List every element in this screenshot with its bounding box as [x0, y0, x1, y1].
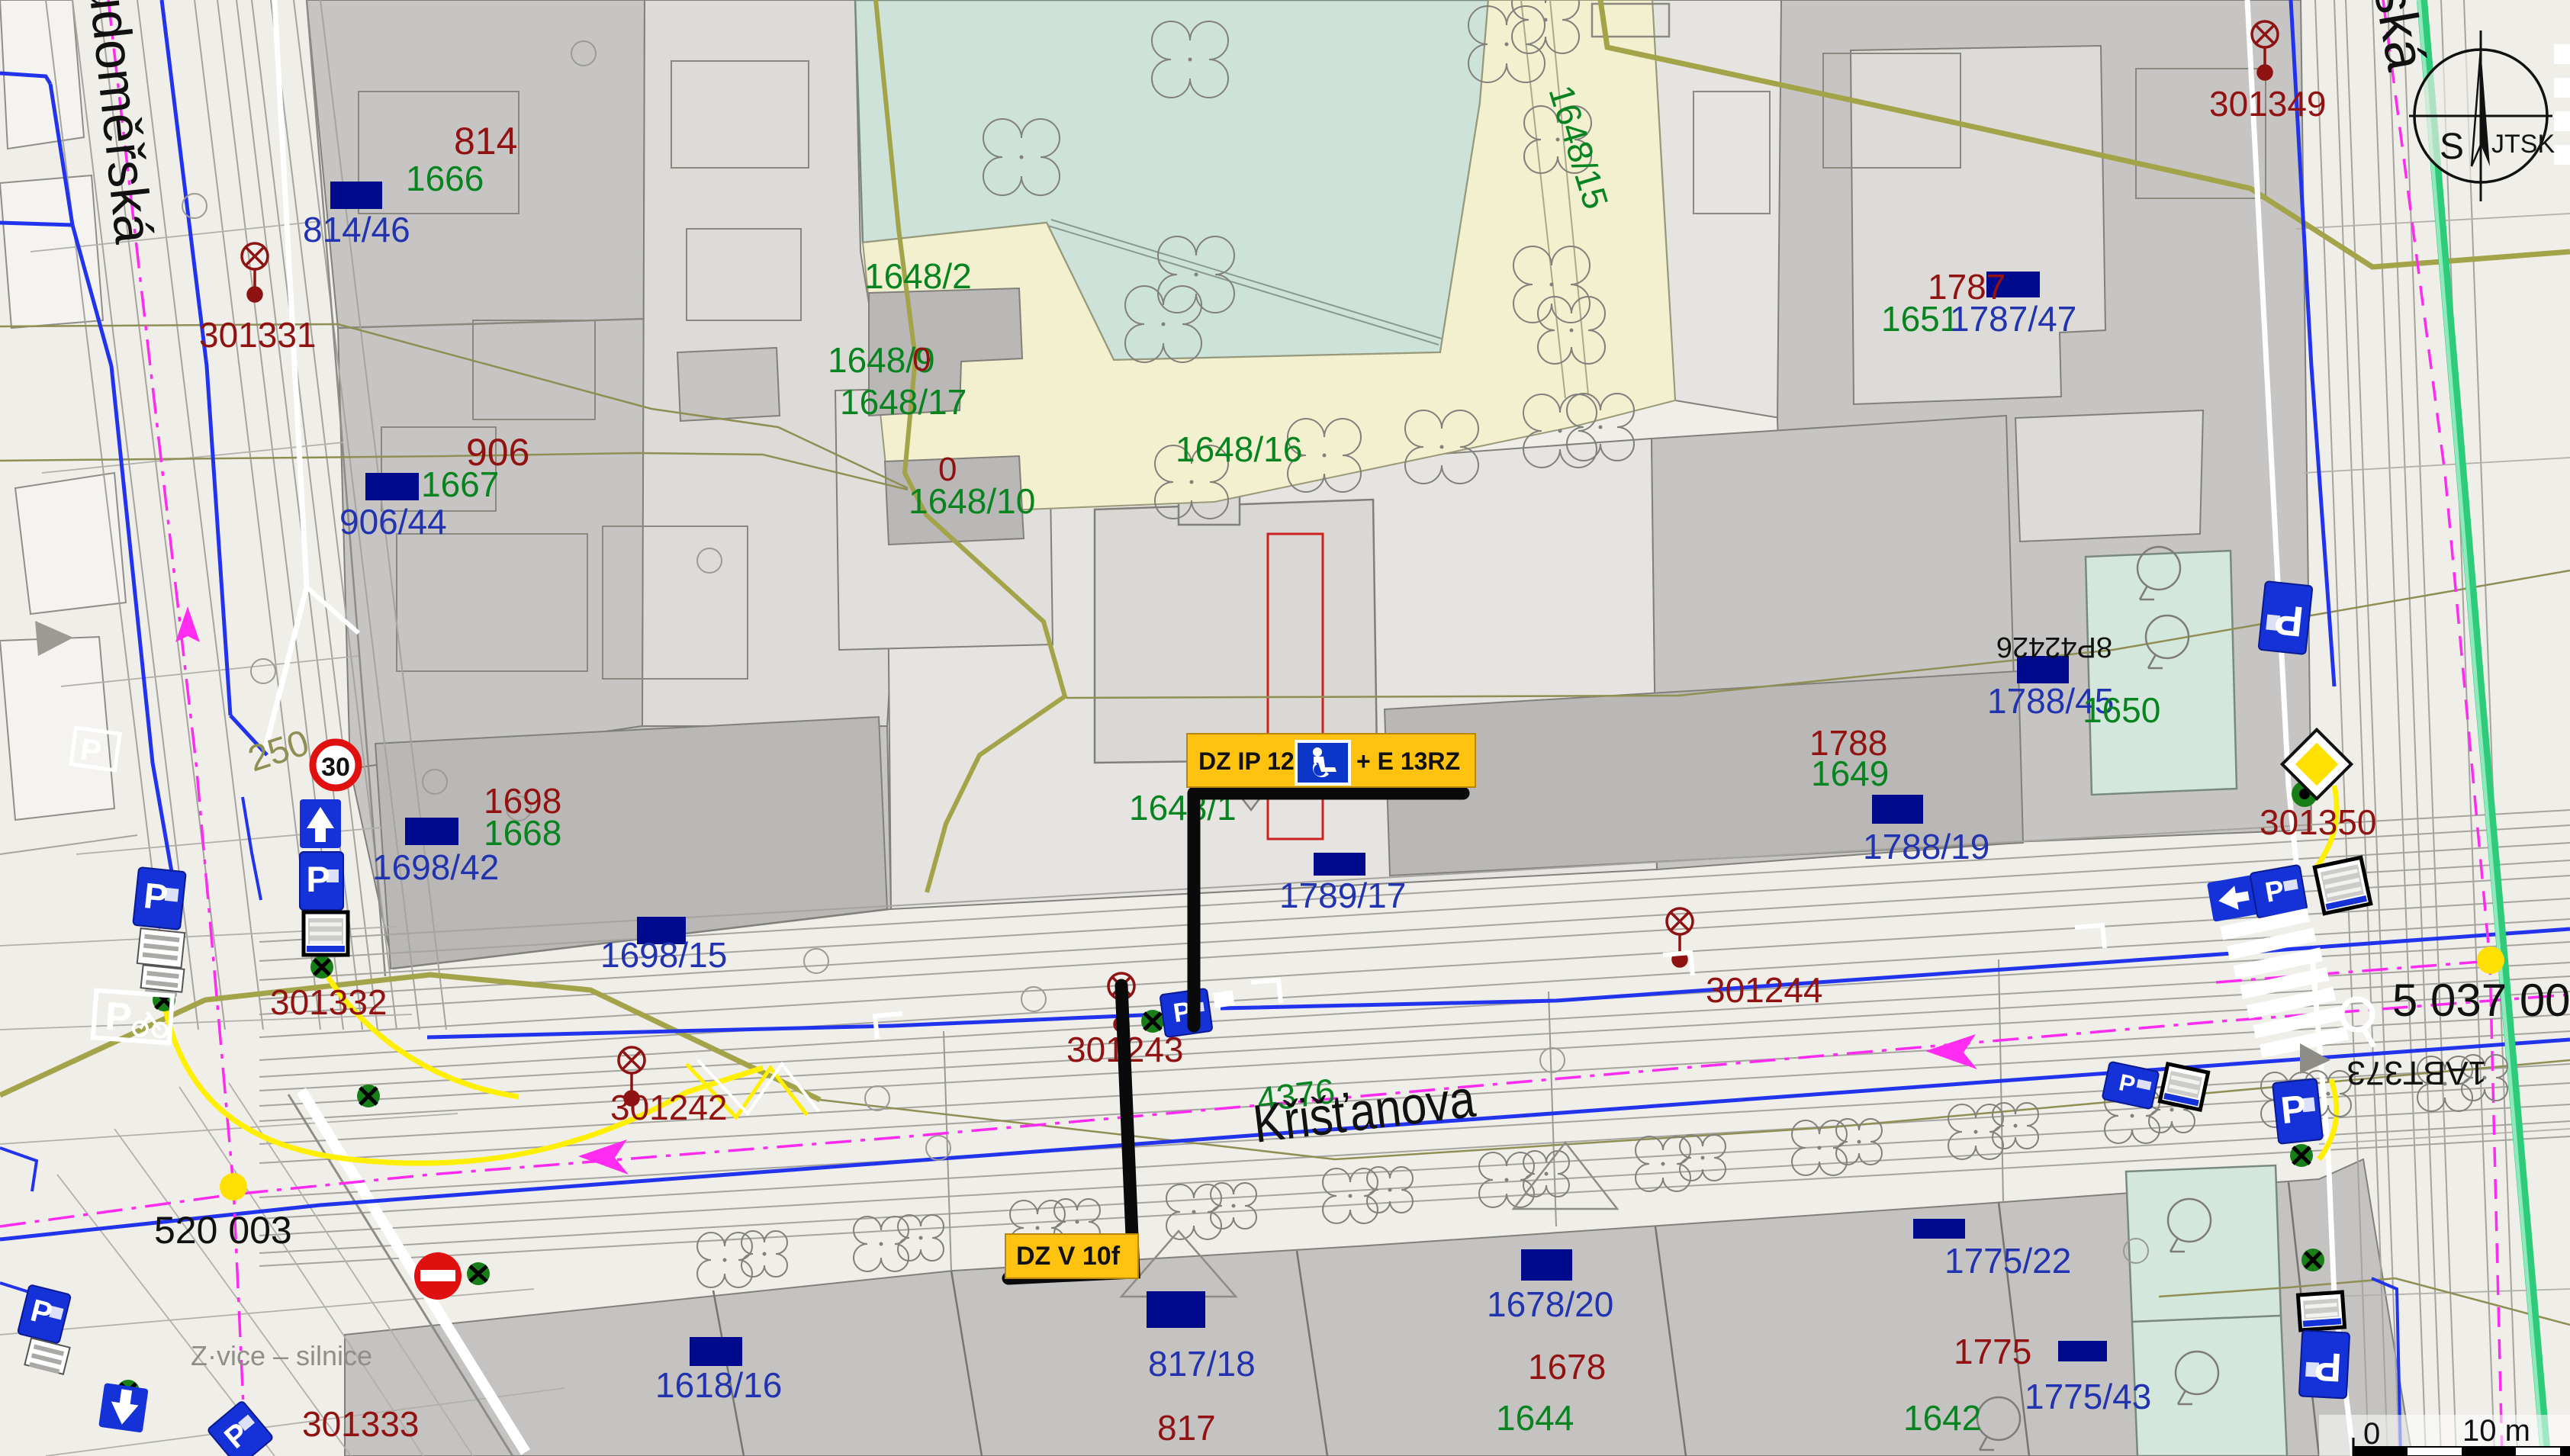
svg-text:10 m: 10 m	[2462, 1414, 2530, 1448]
svg-text:1651: 1651	[1881, 299, 1959, 339]
svg-text:1788/19: 1788/19	[1863, 827, 1989, 866]
svg-text:1698/42: 1698/42	[372, 847, 499, 887]
svg-text:+ E 13RZ: + E 13RZ	[1356, 747, 1460, 775]
svg-text:1648/17: 1648/17	[840, 382, 967, 422]
svg-text:1648/16: 1648/16	[1176, 429, 1302, 469]
svg-text:1618/16: 1618/16	[655, 1365, 782, 1405]
svg-text:1642: 1642	[1903, 1398, 1981, 1438]
svg-text:1678/20: 1678/20	[1487, 1284, 1613, 1324]
svg-text:Z·vice – silnice: Z·vice – silnice	[191, 1340, 372, 1371]
svg-text:8P42426: 8P42426	[1996, 631, 2112, 663]
svg-text:0: 0	[2363, 1417, 2380, 1451]
svg-text:301350: 301350	[2260, 802, 2377, 842]
svg-text:301332: 301332	[270, 982, 388, 1022]
svg-text:1644: 1644	[1496, 1398, 1574, 1438]
svg-text:1787/47: 1787/47	[1950, 299, 2076, 339]
svg-text:S: S	[2440, 127, 2464, 167]
svg-text:301242: 301242	[610, 1088, 728, 1127]
svg-text:1649: 1649	[1811, 754, 1889, 793]
svg-text:1650: 1650	[2083, 690, 2160, 730]
svg-text:817: 817	[1157, 1408, 1216, 1448]
svg-text:30: 30	[321, 753, 350, 782]
svg-text:817/18: 817/18	[1148, 1344, 1256, 1384]
svg-text:301331: 301331	[199, 315, 317, 355]
svg-text:1678: 1678	[1528, 1347, 1606, 1387]
svg-text:1775/22: 1775/22	[1944, 1241, 2071, 1281]
svg-text:P: P	[104, 995, 133, 1040]
svg-text:814: 814	[454, 120, 517, 162]
svg-text:906/44: 906/44	[339, 502, 447, 542]
svg-text:JTSK: JTSK	[2491, 130, 2555, 159]
svg-text:1ABT373: 1ABT373	[2347, 1054, 2487, 1091]
svg-text:P: P	[306, 859, 330, 899]
svg-text:1775: 1775	[1954, 1332, 2031, 1371]
svg-text:301349: 301349	[2209, 84, 2327, 124]
svg-text:1648/2: 1648/2	[864, 256, 972, 296]
svg-text:1648/10: 1648/10	[909, 481, 1035, 521]
svg-text:5 037 00: 5 037 00	[2392, 975, 2570, 1026]
svg-text:1698/15: 1698/15	[600, 935, 727, 975]
svg-text:1666: 1666	[406, 159, 484, 198]
svg-text:814/46: 814/46	[303, 210, 410, 249]
svg-text:1775/43: 1775/43	[2025, 1377, 2151, 1416]
svg-text:301333: 301333	[302, 1404, 420, 1444]
svg-text:DZ IP 12: DZ IP 12	[1198, 747, 1295, 775]
svg-text:0: 0	[912, 341, 931, 378]
svg-text:1667: 1667	[421, 464, 499, 504]
svg-text:1789/17: 1789/17	[1279, 876, 1406, 915]
svg-text:520 003: 520 003	[154, 1209, 292, 1252]
svg-text:DZ V 10f: DZ V 10f	[1016, 1242, 1121, 1271]
svg-text:301244: 301244	[1706, 970, 1823, 1010]
